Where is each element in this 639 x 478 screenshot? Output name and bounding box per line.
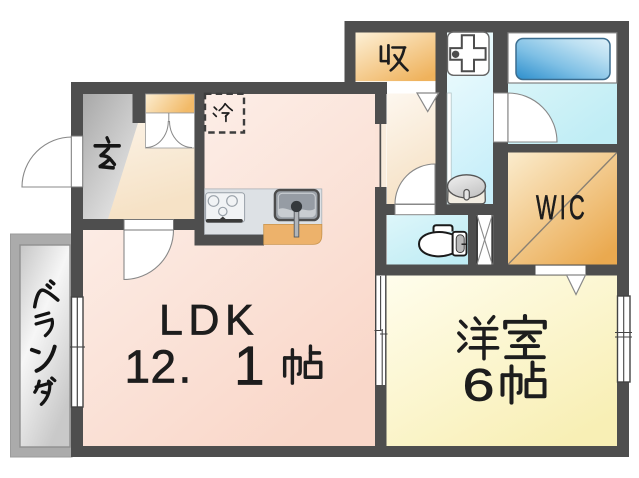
svg-text:1: 1 — [234, 334, 265, 396]
svg-text:1: 1 — [125, 341, 151, 393]
svg-text:6: 6 — [462, 359, 494, 409]
svg-text:2: 2 — [151, 341, 177, 393]
svg-text:.: . — [179, 341, 192, 393]
svg-text:WIC: WIC — [536, 189, 588, 227]
